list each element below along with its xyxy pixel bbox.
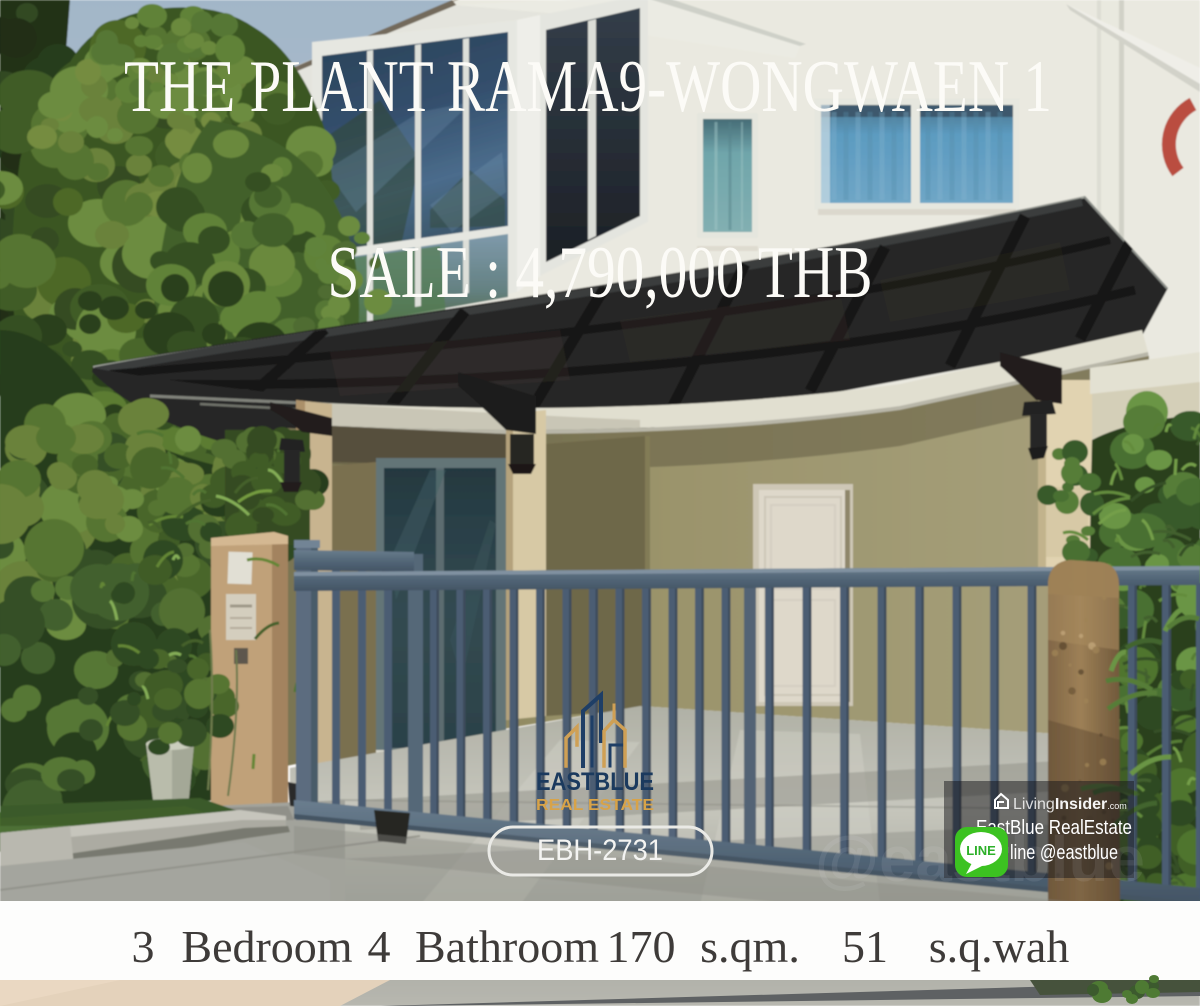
svg-text:line @eastblue: line @eastblue	[1010, 842, 1118, 864]
svg-text:SALE : 4,790,000 THB: SALE : 4,790,000 THB	[328, 232, 873, 314]
svg-text:THE PLANT RAMA9-WONGWAEN 1: THE PLANT RAMA9-WONGWAEN 1	[124, 46, 1052, 128]
svg-text:51: 51	[842, 921, 888, 972]
svg-text:s.q.wah: s.q.wah	[929, 921, 1070, 972]
svg-text:Bathroom: Bathroom	[415, 921, 599, 972]
svg-text:Bedroom: Bedroom	[181, 921, 352, 972]
svg-text:s.qm.: s.qm.	[700, 921, 800, 972]
svg-text:170: 170	[607, 921, 676, 972]
svg-text:REAL ESTATE: REAL ESTATE	[536, 797, 654, 814]
svg-text:LINE: LINE	[966, 843, 996, 858]
svg-text:3: 3	[132, 921, 155, 972]
svg-text:EBH-2731: EBH-2731	[537, 834, 663, 867]
svg-text:4: 4	[368, 921, 391, 972]
svg-text:EASTBLUE: EASTBLUE	[536, 768, 654, 796]
